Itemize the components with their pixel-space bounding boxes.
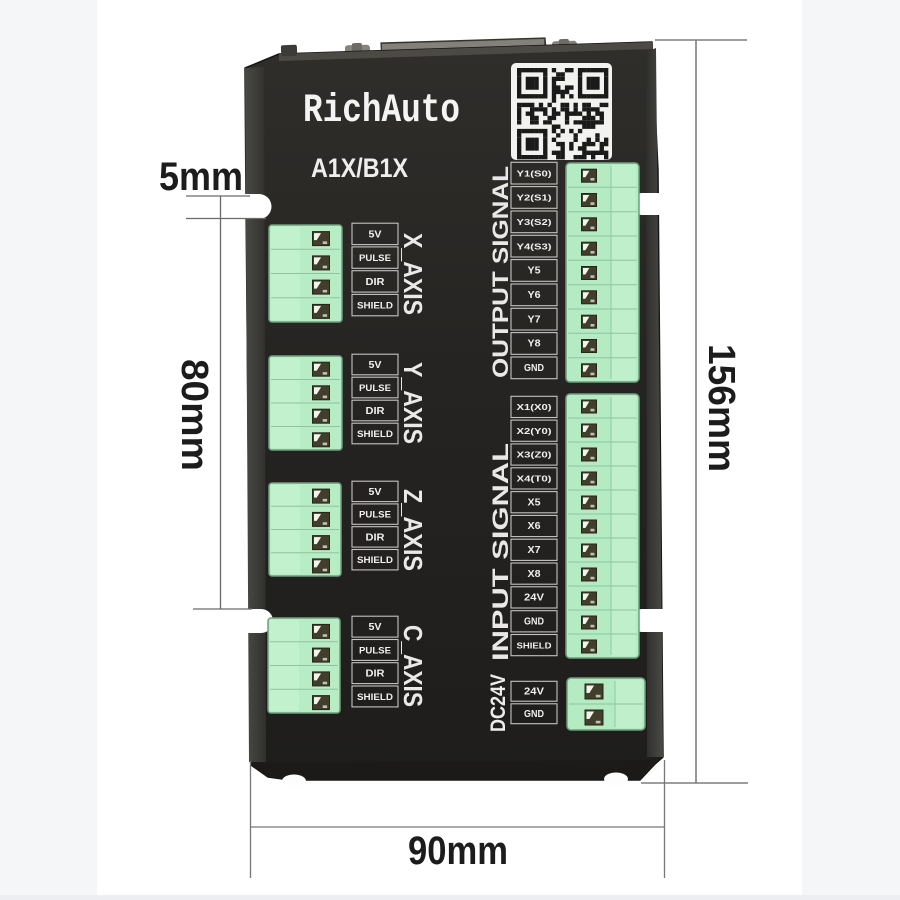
svg-text:SHIELD: SHIELD (357, 301, 393, 312)
svg-text:RichAuto: RichAuto (303, 89, 460, 134)
svg-text:156mm: 156mm (700, 344, 742, 472)
svg-text:Y_AXIS: Y_AXIS (398, 362, 428, 444)
svg-text:PULSE: PULSE (359, 253, 391, 264)
svg-text:SHIELD: SHIELD (517, 640, 552, 650)
svg-text:DIR: DIR (366, 668, 385, 680)
svg-text:Y5: Y5 (528, 266, 541, 277)
svg-text:X3(Z0): X3(Z0) (517, 450, 552, 460)
svg-text:X1(X0): X1(X0) (517, 402, 552, 412)
svg-text:Y1(S0): Y1(S0) (517, 168, 552, 178)
svg-text:Y2(S1): Y2(S1) (517, 193, 552, 203)
svg-text:5V: 5V (369, 228, 382, 240)
svg-text:SHIELD: SHIELD (357, 692, 393, 703)
svg-text:Y7: Y7 (528, 314, 541, 325)
svg-text:Y8: Y8 (528, 339, 541, 350)
svg-text:X2(Y0): X2(Y0) (517, 426, 552, 436)
svg-text:5V: 5V (369, 359, 382, 371)
svg-text:PULSE: PULSE (359, 645, 391, 656)
svg-text:90mm: 90mm (408, 829, 508, 873)
svg-text:A1X/B1X: A1X/B1X (311, 153, 408, 183)
svg-text:24V: 24V (524, 687, 544, 698)
svg-text:X8: X8 (528, 569, 541, 580)
svg-text:24V: 24V (524, 593, 544, 604)
svg-text:X7: X7 (528, 545, 541, 556)
svg-text:Y3(S2): Y3(S2) (517, 217, 552, 227)
svg-text:PULSE: PULSE (359, 383, 391, 394)
svg-text:OUTPUT SIGNAL: OUTPUT SIGNAL (488, 166, 513, 378)
svg-text:GND: GND (524, 617, 544, 628)
svg-text:Z_AXIS: Z_AXIS (398, 489, 428, 571)
svg-text:5V: 5V (369, 621, 382, 633)
svg-text:X4(T0): X4(T0) (517, 474, 552, 484)
svg-text:DC24V: DC24V (487, 674, 510, 732)
svg-text:C_AXIS: C_AXIS (398, 625, 428, 707)
svg-text:Y4(S3): Y4(S3) (517, 241, 552, 251)
svg-text:DIR: DIR (366, 276, 385, 288)
svg-text:80mm: 80mm (173, 359, 215, 471)
svg-text:GND: GND (524, 363, 544, 374)
svg-text:SHIELD: SHIELD (357, 555, 393, 566)
svg-text:X5: X5 (528, 497, 541, 508)
svg-text:X6: X6 (528, 521, 541, 532)
svg-text:DIR: DIR (366, 531, 385, 543)
svg-text:GND: GND (524, 709, 544, 720)
svg-text:SHIELD: SHIELD (357, 429, 393, 440)
svg-text:Y6: Y6 (528, 290, 541, 301)
svg-text:X_AXIS: X_AXIS (398, 233, 428, 315)
svg-text:PULSE: PULSE (359, 510, 391, 521)
svg-text:DIR: DIR (366, 405, 385, 417)
svg-text:5mm: 5mm (159, 155, 243, 199)
svg-text:5V: 5V (369, 486, 382, 498)
svg-text:INPUT SIGNAL: INPUT SIGNAL (488, 443, 513, 661)
